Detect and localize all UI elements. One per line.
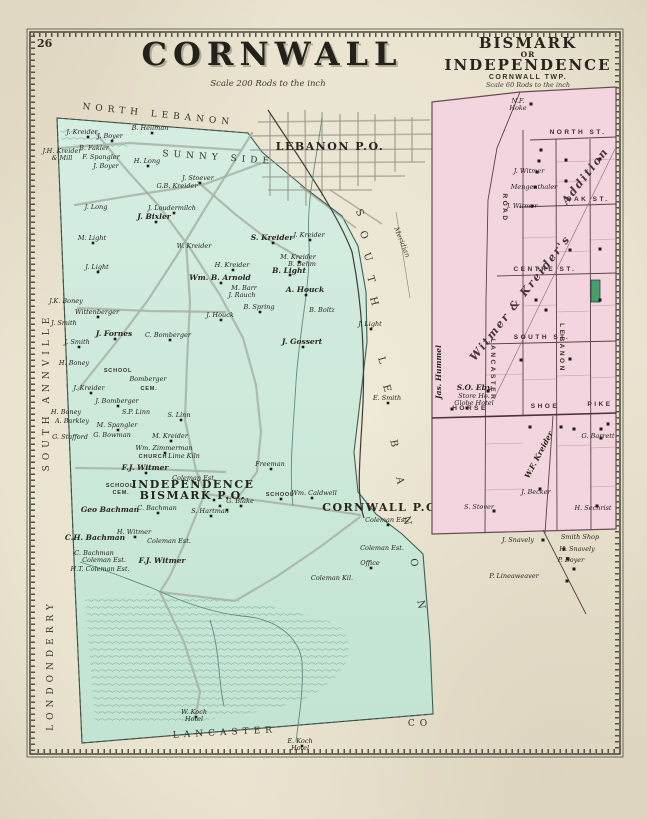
building-mark [145, 472, 148, 475]
building-mark [170, 440, 173, 443]
inset-building-mark [599, 299, 602, 302]
inset-label-h-sechrist: H. Sechrist [573, 504, 611, 512]
inset-building-mark [569, 249, 572, 252]
main-label-b-fakler: B. Fakler [78, 144, 110, 152]
building-mark [111, 140, 114, 143]
building-mark [97, 316, 100, 319]
building-mark [370, 567, 373, 570]
main-label-lebanon-p-o: LEBANON P.O. [276, 140, 385, 153]
inset-label-s-stover: S. Stover [464, 503, 495, 511]
inset-title-line3: INDEPENDENCE [444, 56, 611, 74]
main-scale-note: Scale 200 Rods to the inch [210, 79, 325, 89]
main-label-wm-zimmerman: Wm. Zimmerman [135, 444, 192, 452]
main-label-j-gossert: J. Gossert [280, 337, 323, 346]
main-label-j-fornes: J. Fornes [94, 329, 133, 338]
inset-building-mark [560, 426, 563, 429]
lebanon-street-1 [252, 134, 438, 136]
main-label-freeman: Freeman [254, 460, 285, 468]
main-label-h-t-coleman-est: H.T. Coleman Est. [69, 565, 129, 573]
main-label-j-kreider: J. Kreider [291, 231, 325, 239]
main-label-office: Office [360, 559, 380, 567]
inset-building-mark [538, 160, 541, 163]
main-label-j-kreider: J. Kreider [71, 384, 105, 392]
building-mark [387, 524, 390, 527]
main-label-coleman-est: Coleman Est. [172, 474, 216, 482]
main-label-g-b-kreider: G.B. Kreider [157, 182, 199, 190]
main-label-t: T [364, 274, 377, 284]
inset-street-9 [543, 530, 586, 614]
inset-label-p-boyer: P. Boyer [557, 556, 585, 564]
main-label-a-houck: A. Houck [285, 285, 324, 294]
main-label-wm-caldwell: Wm. Caldwell [291, 489, 337, 497]
inset-label-j-snavely: J. Snavely [500, 536, 534, 544]
lebanon-street-8 [305, 110, 306, 206]
inset-label-h-snavely: H. Snavely [558, 545, 595, 553]
building-mark [155, 221, 158, 224]
main-label-coleman-est: Coleman Est. [147, 537, 191, 545]
main-label-hotel: Hotel [184, 715, 203, 723]
main-label-m-kreider: M. Kreider [151, 432, 189, 440]
main-map: NORTH LEBANONSUNNY SIDELEBANON P.O.INDEP… [41, 102, 442, 752]
main-label-school: SCHOOL [104, 368, 132, 374]
main-label-j-light: J. Light [83, 263, 109, 271]
building-mark [302, 346, 305, 349]
main-label-cornwall-p-o: CORNWALL P.O. [322, 501, 442, 514]
building-mark [147, 165, 150, 168]
main-label-j-smith: J. Smith [49, 319, 77, 327]
main-label-o: O [407, 558, 419, 568]
main-label-h-boney: H. Boney [50, 408, 82, 416]
main-label-coleman-est: Coleman Est. [360, 544, 404, 552]
inset-building-mark [573, 568, 576, 571]
main-label-a-barkley: A. Barkley [54, 417, 89, 425]
inset-building-mark [545, 309, 548, 312]
inset-building-mark [569, 358, 572, 361]
inset-building-mark [520, 359, 523, 362]
building-mark [92, 242, 95, 245]
main-label-j-k-boney: J.K. Boney [47, 297, 83, 305]
main-label-cem: CEM. [141, 386, 158, 392]
main-label-a: A [393, 475, 405, 486]
main-label-e-smith: E. Smith [372, 394, 401, 402]
inset-building-mark [599, 248, 602, 251]
main-label-j-boyer: J. Boyer [95, 132, 123, 140]
building-mark [210, 515, 213, 518]
building-mark [240, 505, 243, 508]
inset-label-jas-hummel: Jas. Hummel [434, 345, 443, 401]
main-label-b-heilman: B. Heilman [131, 124, 169, 132]
main-label-g-blake: G. Blake [226, 497, 254, 505]
inset-label-j-witmer: J. Witmer [512, 167, 546, 175]
main-title: CORNWALL [142, 35, 403, 73]
inset-building-mark [565, 159, 568, 162]
main-label-south-annville: SOUTH ANNVILLE [42, 313, 52, 472]
main-label-s-hartman: S. Hartman [191, 507, 229, 515]
inset-building-mark [529, 426, 532, 429]
main-label-g-stafford: G. Stafford [52, 433, 88, 441]
main-label-c-h-bachman: C.H. Bachman [65, 533, 125, 542]
building-mark [151, 132, 154, 135]
main-label-s-kreider: S. Kreider [251, 233, 294, 242]
main-label-s-linn: S. Linn [167, 411, 190, 419]
inset-label-s-o-eby: S.O. Eby [457, 383, 492, 392]
main-label-c-bomberger: C. Bomberger [145, 331, 192, 339]
inset-label-hoke: Hoke [508, 104, 527, 112]
main-label-e: E [380, 383, 393, 393]
building-mark [220, 282, 223, 285]
main-label-n: N [414, 600, 426, 610]
inset-label-lebanon: LEBANON [558, 323, 565, 373]
main-label-c-bachman: C. Bachman [137, 504, 177, 512]
main-label-s-p-linn: S.P. Linn [122, 408, 150, 416]
main-label-b-boltz: B. Boltz [308, 306, 335, 314]
main-label-coleman-kil: Coleman Kil. [311, 574, 353, 582]
main-label-h-long: H. Long [133, 157, 160, 165]
page-number: 26 [37, 37, 53, 50]
main-label-wittenberger: Wittenberger [75, 308, 120, 316]
building-mark [87, 136, 90, 139]
inset-map: NORTH ST.OAK ST.CENTRE ST.SOUTH ST.HORSE… [432, 87, 616, 614]
inset-label-smith-shop: Smith Shop [561, 533, 600, 541]
main-label-wm-b-arnold: Wm. B. Arnold [189, 273, 251, 282]
building-mark [270, 468, 273, 471]
main-label-w-kreider: W. Kreider [177, 242, 213, 250]
main-label-school: SCHOOL [266, 492, 294, 498]
main-label-coleman-est: Coleman Est. [82, 556, 126, 564]
building-mark [157, 512, 160, 515]
main-label-coleman-est: Coleman Est. [365, 516, 409, 524]
building-mark [90, 392, 93, 395]
main-label-mill: & Mill [52, 154, 73, 162]
inset-label-shoe: SHOE [531, 403, 559, 410]
main-label-b-spring: B. Spring [242, 303, 274, 311]
inset-building-mark [566, 580, 569, 583]
main-label-m-light: M. Light [77, 234, 107, 242]
inset-label-j-becker: J. Becker [519, 488, 551, 496]
main-label-s: S [353, 208, 366, 219]
main-label-j-bomberger: J. Bomberger [93, 397, 139, 405]
inset-label-mengenthaler: Mengenthaler [510, 183, 558, 191]
building-mark [134, 536, 137, 539]
inset-label-north-st: NORTH ST. [550, 129, 607, 136]
building-mark [78, 346, 81, 349]
main-label-geo-bachman: Geo Bachman [81, 505, 139, 514]
main-label-cem: CEM. [113, 490, 130, 496]
main-label-l: L [375, 355, 388, 365]
main-label-j-kreider: J. Kreider [64, 128, 98, 136]
main-label-f-j-witmer: F.J. Witmer [138, 556, 187, 565]
building-mark [387, 402, 390, 405]
lebanon-street-4 [262, 176, 405, 177]
inset-building-mark [600, 428, 603, 431]
building-mark [173, 212, 176, 215]
inset-scale-note: Scale 60 Rods to the inch [486, 81, 570, 89]
main-label-b: B [387, 439, 399, 448]
inset-building-mark [530, 103, 533, 106]
building-mark [117, 405, 120, 408]
main-label-j-long: J. Long [83, 203, 108, 211]
building-mark [309, 239, 312, 242]
building-mark [370, 328, 373, 331]
main-label-u: U [361, 251, 374, 263]
main-label-f-j-witmer: F.J. Witmer [121, 463, 170, 472]
building-mark [180, 419, 183, 422]
lebanon-street-0 [258, 120, 430, 122]
building-mark [114, 338, 117, 341]
main-label-f-spangler: F. Spangler [81, 153, 120, 161]
main-label-j-bixler: J. Bixler [135, 212, 171, 221]
main-label-school: SCHOOL [106, 483, 134, 489]
inset-building-mark [565, 180, 568, 183]
building-mark [220, 319, 223, 322]
building-mark [272, 242, 275, 245]
building-mark [169, 339, 172, 342]
main-label-j-rauch: J. Rauch [226, 291, 255, 299]
inset-building-mark [535, 299, 538, 302]
main-label-j-loudermilch: J. Loudermilch [146, 204, 196, 212]
inset-boundary [432, 87, 616, 534]
inset-label-j-witmer: J. Witmer [505, 202, 539, 210]
main-label-j-boyer: J. Boyer [91, 162, 119, 170]
building-mark [280, 498, 283, 501]
cornwall-map-canvas: 26 CORNWALL CORNWALL Scale 200 Rods to t… [0, 0, 647, 819]
inset-building-mark [573, 428, 576, 431]
main-label-j-smith: J. Smith [62, 338, 90, 346]
inset-label-p-lineaweaver: P. Lineaweaver [488, 572, 539, 580]
inset-building-mark [607, 423, 610, 426]
main-label-j-light: J. Light [356, 320, 382, 328]
building-mark [259, 311, 262, 314]
main-label-b-light: B. Light [271, 266, 306, 275]
main-label-co: CO [408, 719, 432, 729]
main-label-h: H [367, 296, 380, 308]
main-label-h-boney: H. Boney [58, 359, 90, 367]
inset-label-globe-hotel: Globe Hotel [454, 399, 493, 407]
building-mark [311, 497, 314, 500]
main-label-hotel: Hotel [290, 744, 309, 752]
building-mark [97, 271, 100, 274]
main-label-h-kreider: H. Kreider [214, 261, 251, 269]
building-mark [305, 294, 308, 297]
inset-building-mark [540, 149, 543, 152]
main-label-o: O [357, 229, 370, 241]
inset-subtitle: CORNWALL TWP. [489, 74, 567, 81]
main-label-j-stoever: J. Stoever [180, 174, 215, 182]
main-label-m-spangler: M. Spangler [96, 421, 139, 429]
inset-building-mark [542, 539, 545, 542]
atlas-page: 26 CORNWALL CORNWALL Scale 200 Rods to t… [0, 0, 647, 819]
building-mark [199, 182, 202, 185]
main-label-bomberger: Bomberger [128, 375, 167, 383]
main-label-j-houck: J. Houck [204, 311, 234, 319]
main-label-g-bowman: G. Bowman [93, 431, 131, 439]
inset-label-pike: PIKE [587, 401, 612, 408]
main-label-lime-kiln: Lime Kiln [167, 452, 200, 460]
inset-label-g-barrett: G. Barrett [581, 432, 614, 440]
building-mark [232, 269, 235, 272]
main-label-londonderry: LONDONDERRY [46, 599, 56, 731]
main-label-church: CHURCH [139, 454, 168, 460]
main-label-meridian: Meridian [392, 225, 412, 259]
